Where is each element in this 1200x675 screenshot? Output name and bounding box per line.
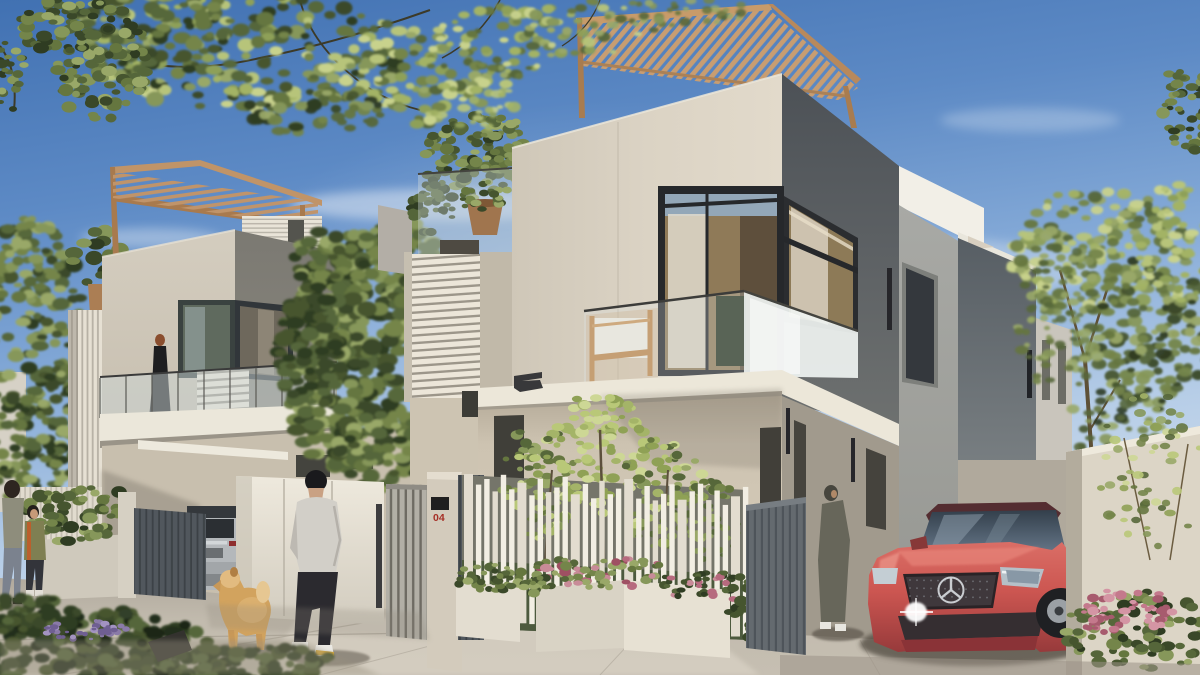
svg-text:04: 04: [433, 512, 445, 524]
